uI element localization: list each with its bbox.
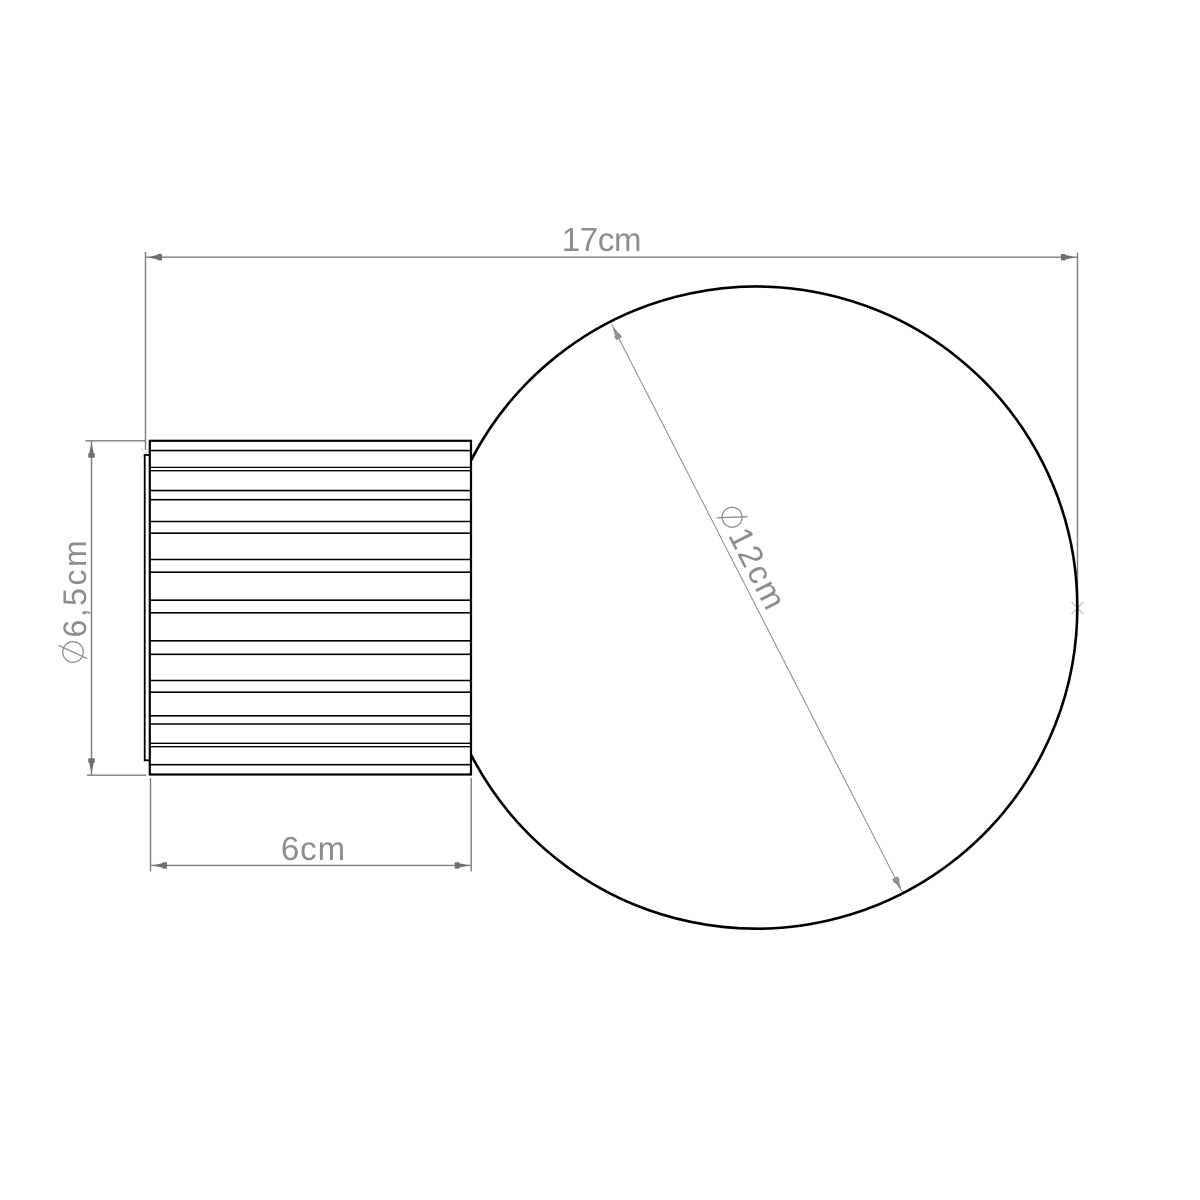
svg-text:6,5cm: 6,5cm: [57, 538, 93, 638]
svg-text:17cm: 17cm: [562, 221, 642, 258]
svg-text:6cm: 6cm: [281, 830, 346, 867]
